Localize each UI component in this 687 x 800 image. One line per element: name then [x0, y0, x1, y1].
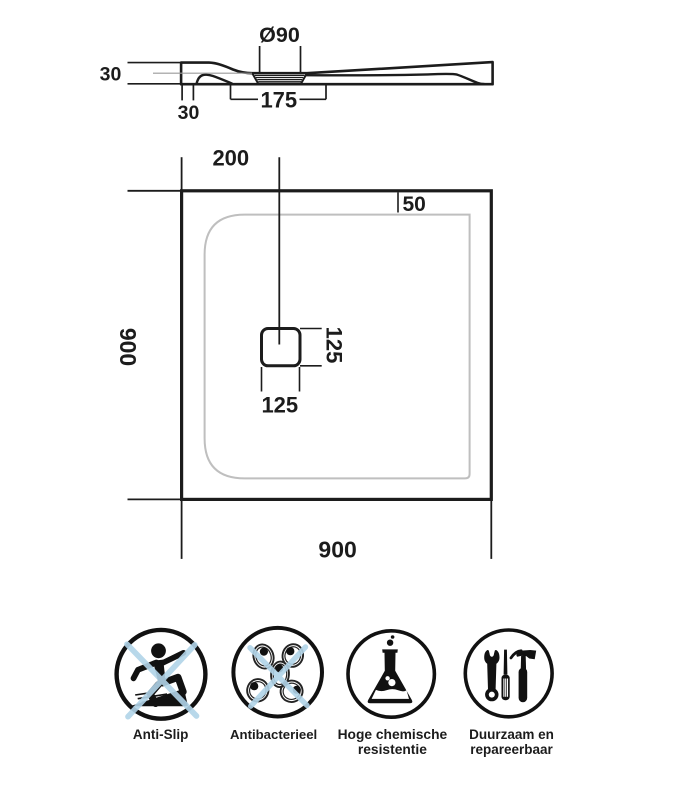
svg-text:Duurzaam en: Duurzaam en	[469, 727, 554, 742]
svg-text:Antibacterieel: Antibacterieel	[230, 727, 317, 742]
svg-text:repareerbaar: repareerbaar	[470, 742, 553, 757]
svg-text:900: 900	[115, 328, 141, 366]
svg-text:Ø90: Ø90	[259, 23, 300, 47]
svg-text:Anti-Slip: Anti-Slip	[133, 727, 189, 742]
svg-text:30: 30	[178, 102, 200, 124]
svg-text:175: 175	[260, 88, 297, 113]
svg-text:30: 30	[100, 63, 122, 85]
svg-text:125: 125	[261, 392, 298, 417]
svg-text:50: 50	[403, 193, 426, 216]
svg-text:200: 200	[212, 145, 249, 170]
svg-text:900: 900	[318, 537, 356, 563]
svg-text:125: 125	[322, 327, 347, 364]
svg-text:resistentie: resistentie	[358, 742, 427, 757]
svg-text:Hoge chemische: Hoge chemische	[338, 727, 448, 742]
